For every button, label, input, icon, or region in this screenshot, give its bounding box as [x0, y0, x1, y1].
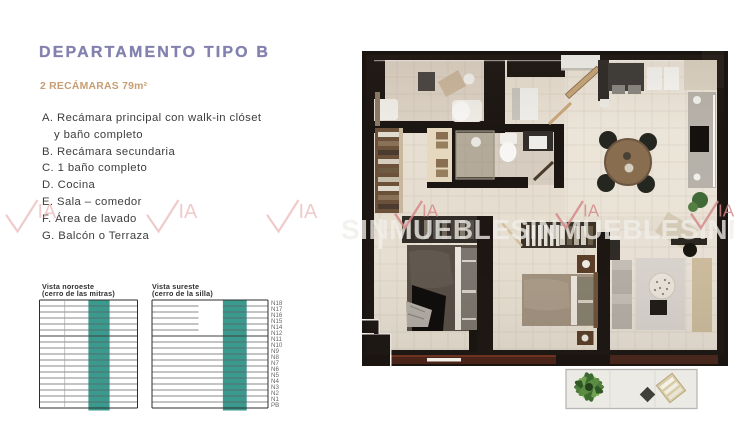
- svg-text:IA: IA: [299, 201, 319, 223]
- svg-text:PB: PB: [271, 402, 279, 409]
- svg-text:IA: IA: [422, 201, 439, 220]
- svg-text:IA: IA: [38, 201, 58, 223]
- svg-text:SINMUEBLESINMUEBLESINM: SINMUEBLESINMUEBLESINM: [341, 214, 734, 245]
- svg-text:IA: IA: [179, 201, 199, 223]
- svg-text:IA: IA: [718, 201, 734, 220]
- svg-text:IA: IA: [583, 201, 600, 220]
